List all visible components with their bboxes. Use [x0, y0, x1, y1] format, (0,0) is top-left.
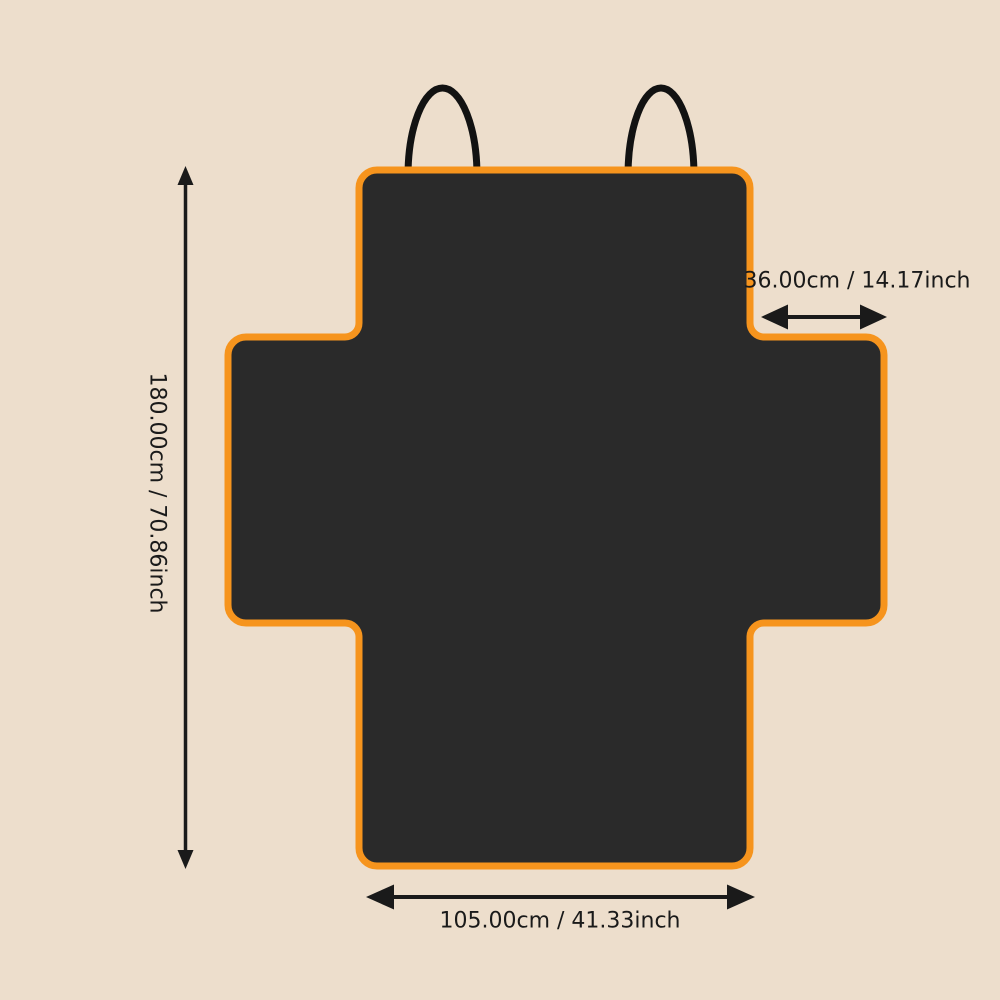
height-arrowhead-up-icon: [178, 166, 194, 185]
product-dimension-diagram: 180.00cm / 70.86inch 36.00cm / 14.17inch…: [0, 0, 1000, 1000]
height-dimension-label: 180.00cm / 70.86inch: [145, 373, 170, 614]
height-arrowhead-down-icon: [178, 850, 194, 869]
flap-width-dimension-label: 36.00cm / 14.17inch: [744, 269, 971, 294]
height-dimension-arrow: [178, 166, 194, 869]
flap-width-dimension-arrow: [761, 305, 887, 330]
base-width-dimension-label: 105.00cm / 41.33inch: [440, 909, 681, 934]
right-strap-loop-icon: [628, 88, 694, 176]
base-arrowhead-left-icon: [366, 885, 394, 910]
base-arrowhead-right-icon: [727, 885, 755, 910]
flap-arrowhead-right-icon: [860, 305, 887, 330]
base-width-dimension-arrow: [366, 885, 755, 910]
flap-arrowhead-left-icon: [761, 305, 788, 330]
left-strap-loop-icon: [408, 88, 477, 176]
